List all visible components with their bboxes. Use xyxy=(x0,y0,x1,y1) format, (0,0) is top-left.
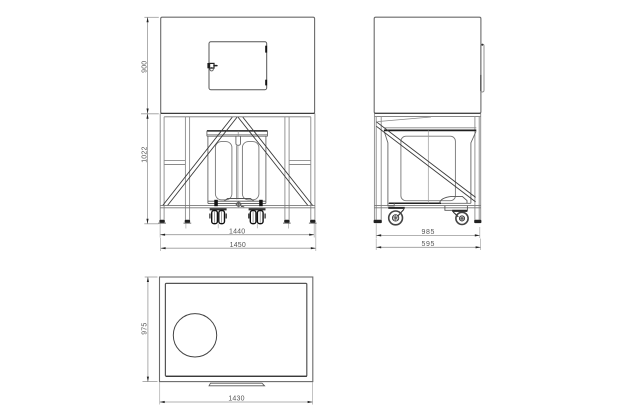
svg-text:900: 900 xyxy=(142,61,149,73)
svg-text:1430: 1430 xyxy=(228,396,244,403)
svg-text:985: 985 xyxy=(421,229,434,236)
svg-text:1440: 1440 xyxy=(229,228,245,235)
svg-text:1450: 1450 xyxy=(230,242,246,249)
svg-text:1022: 1022 xyxy=(142,146,149,162)
svg-text:595: 595 xyxy=(422,241,435,248)
svg-text:975: 975 xyxy=(142,323,149,335)
